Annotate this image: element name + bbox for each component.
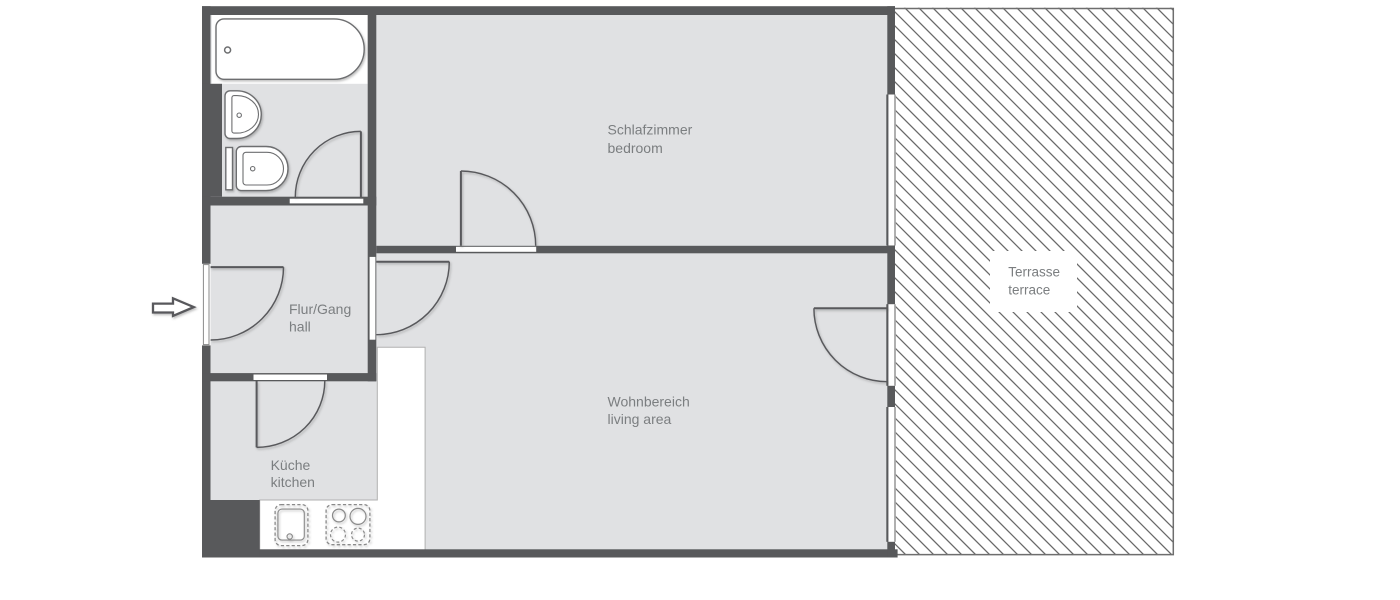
svg-text:Wohnbereich: Wohnbereich — [608, 393, 690, 409]
svg-text:Schlafzimmer: Schlafzimmer — [608, 122, 693, 138]
svg-text:kitchen: kitchen — [271, 474, 315, 490]
svg-text:hall: hall — [289, 319, 311, 335]
svg-text:terrace: terrace — [1008, 283, 1050, 298]
svg-text:Flur/Gang: Flur/Gang — [289, 301, 351, 317]
svg-text:bedroom: bedroom — [608, 140, 663, 156]
svg-text:Terrasse: Terrasse — [1008, 265, 1060, 280]
svg-text:living area: living area — [608, 411, 672, 427]
svg-text:Küche: Küche — [271, 457, 311, 473]
